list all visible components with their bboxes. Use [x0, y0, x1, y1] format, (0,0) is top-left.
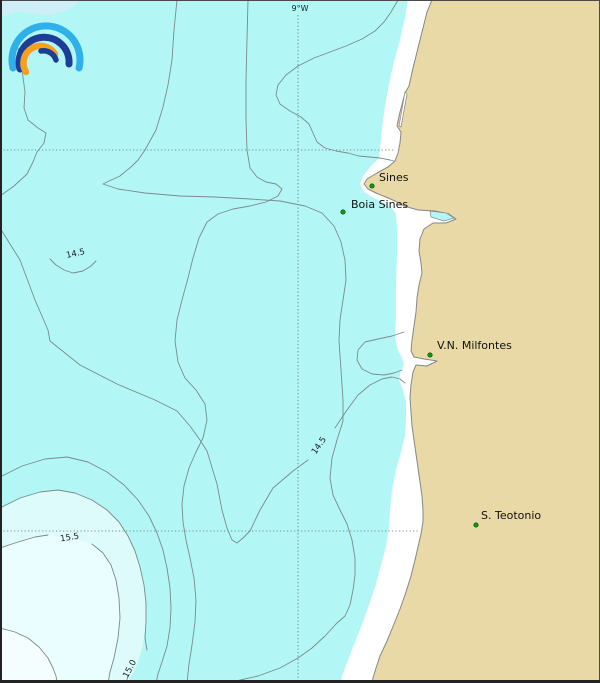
meridian-label: 9°W [292, 4, 309, 13]
place-label-sines: Sines [379, 171, 409, 184]
ocean-forecast-map: 14.5 14.5 15.5 15.0 9°W Sines Boia Sines… [0, 0, 600, 683]
marker-boia-sines [341, 210, 345, 214]
marker-vn-milfontes [428, 353, 432, 357]
map-canvas: 14.5 14.5 15.5 15.0 9°W Sines Boia Sines… [0, 0, 600, 683]
marker-s-teotonio [474, 523, 478, 527]
marker-sines [370, 184, 374, 188]
place-label-s-teotonio: S. Teotonio [481, 509, 541, 522]
place-label-boia-sines: Boia Sines [351, 198, 408, 211]
place-label-vn-milfontes: V.N. Milfontes [437, 339, 512, 352]
